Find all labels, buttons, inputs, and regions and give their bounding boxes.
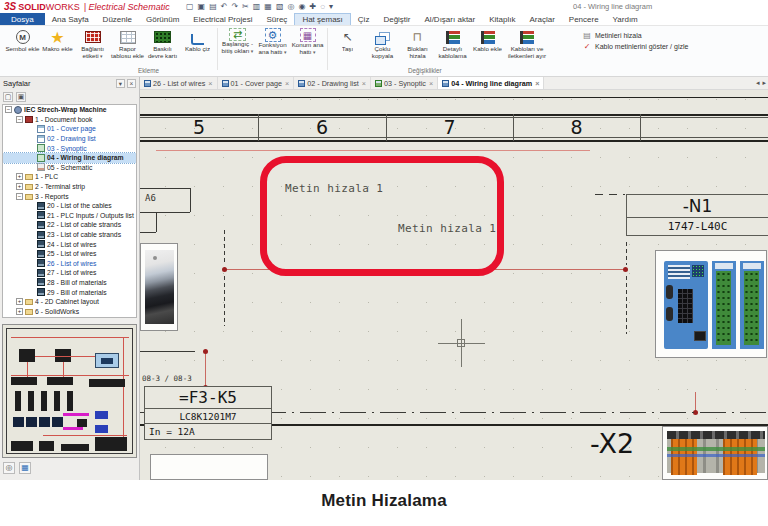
button-label: Rapor tablosu ekle [110,46,145,60]
component-block-f3-k5[interactable]: =F3-K5 LC8K1201M7 In = 12A [144,386,272,440]
multi-copy-button[interactable]: Çoklu kopyala [365,28,400,60]
red-grid-icon [85,31,101,43]
report-page-icon [37,269,45,277]
sidebar-toolbar: ▢ ▣ [3,92,26,102]
menu-tab-surec[interactable]: Süreç [259,13,294,25]
tree-item-document-book[interactable]: 1 - Document book [3,115,136,125]
doc-tab-04-wiring-line-diagram[interactable]: 04 - Wiring line diagram × [438,77,544,89]
paste-special-icon[interactable]: ▧ [276,0,284,13]
tree-item-cover-page[interactable]: 01 - Cover page [3,124,136,134]
main-area: ▢ ▣ IEC Strech-Wrap Machine 1 - Document… [0,90,768,480]
folder-icon [25,184,33,190]
tree-item-label: 22 - List of cable strands [47,221,121,228]
sidebar-title: Sayfalar [3,79,114,88]
tree-item-plc-folder[interactable]: 1 - PLC [3,172,136,182]
expander-icon[interactable] [16,193,23,200]
button-label: Makro ekle [42,46,72,60]
close-tab-icon[interactable]: × [362,79,366,88]
zoom-fit-icon[interactable]: ◉ [298,0,305,13]
table-icon [120,31,136,44]
tree-item-report-20[interactable]: 20 - List of the cables [3,201,136,211]
doc-icon [375,80,382,87]
tree-item-label: 26 - List of wires [47,260,96,267]
document-tab-row: Sayfalar ▾ × 26 - List of wires × 01 - C… [0,77,768,90]
tree-item-label: 01 - Cover page [47,125,96,132]
ribbon-side-buttons: ▤ Metinleri hizala ✓ Kablo metinlerini g… [582,30,688,52]
button-label: Konum ana hattı [290,42,325,56]
redo-icon[interactable]: ↷ [231,0,238,13]
doc-icon [144,80,151,87]
button-label: Kablo metinlerini göster / gizle [595,43,688,50]
menu-tab-yardim[interactable]: Yardım [606,13,645,25]
tree-item-wiring-line-diagram[interactable]: 04 - Wiring line diagram [3,153,136,163]
move-button[interactable]: ↖ Taşı [330,28,365,60]
button-label: Bağlantı etiketi [75,46,110,60]
close-panel-icon[interactable]: × [127,79,136,88]
button-label: Sembol ekle [5,46,39,60]
menu-tab-dosya[interactable]: Dosya [0,13,45,25]
button-label: Baskılı devre kartı ekle [145,46,180,60]
brand-bold: SOLID [18,2,46,12]
menu-tab-gorunum[interactable]: Görünüm [139,13,186,25]
tree-item-drawing-list[interactable]: 02 - Drawing list [3,134,136,144]
component-tag: -N1 [627,195,768,218]
tree-item-label: 28 - Bill of materials [47,279,107,286]
column-header-6: 6 [258,117,386,137]
menu-tab-al-disari-aktar[interactable]: Al/Dışarı aktar [418,13,483,25]
zoom-window-icon[interactable]: ◎ [287,0,294,13]
insert-report-table-button[interactable]: Rapor tablosu ekle [110,28,145,60]
cable-bars-add-icon [481,31,495,44]
tree-item-report-25[interactable]: 25 - List of wires [3,249,136,259]
move-arrow-icon: ↖ [338,28,358,46]
menu-bar: Dosya Ana Sayfa Düzenle Görünüm Electric… [0,13,768,26]
tree-item-schematic[interactable]: 05 - Schematic [3,163,136,173]
button-label: Taşı [342,46,353,60]
button-label: Kablo çiz [185,46,210,60]
tree-item-label: 27 - List of wires [47,269,96,276]
grid-view-icon[interactable]: ▦ [19,462,31,474]
tree-item-report-27[interactable]: 27 - List of wires [3,268,136,278]
align-text-icon: ▤ [582,31,592,40]
button-label: Blokları hizala [400,46,435,60]
image-caption: Metin Hizalama [0,480,768,526]
align-bracket-icon: ⊓ [408,28,428,46]
copy-icon[interactable]: ▥ [253,0,261,13]
doc-tab-26-list-of-wires[interactable]: 26 - List of wires × [140,77,218,89]
folder-icon [25,174,33,180]
doc-icon [442,80,449,87]
report-page-icon [37,288,45,296]
solidworks-logo: 3S SOLIDWORKS | Electrical Schematic [4,0,170,14]
copy-squares-icon [375,36,386,45]
clipboard-icon[interactable]: ▣ [16,92,26,102]
pan-icon[interactable]: ✚ [309,0,316,13]
wire [205,351,206,388]
button-label: Kablo ekle [473,46,502,60]
page-icon [37,125,45,133]
solidworks-logo-mark: 3S [4,0,16,13]
book-icon [25,116,33,123]
menu-tab-electrical-projesi[interactable]: Electrical Projesi [186,13,259,25]
tree-item-label: 3 - Reports [35,193,69,200]
document-tabs: 26 - List of wires × 01 - Cover page × 0… [140,77,768,90]
contactor-photo [150,454,268,480]
ribbon: M Sembol ekle ★ Makro ekle Bağlantı etik… [0,26,768,77]
button-label: Başlangıç - bitiş okları [220,41,255,55]
wire-junction [222,267,227,272]
expander-icon[interactable] [16,116,23,123]
origin-destination-arrows-button[interactable]: ⇄ Başlangıç - bitiş okları [220,28,255,55]
brand-light: WORKS [46,2,80,12]
group-label-degisiklikler: Değişiklikler [408,67,442,74]
tab-scroll-right-icon[interactable]: ▸ [762,79,766,87]
close-tab-icon[interactable]: × [535,79,539,88]
button-label: Fonksiyon ana hattı [255,42,290,56]
add-cable-button[interactable]: Kablo ekle [470,28,505,60]
tab-scroll-left-icon[interactable]: ◂ [756,79,760,87]
column-header-8: 8 [513,117,640,137]
separate-cables-button[interactable]: Kabloları ve iletkenleri ayır [505,28,549,60]
doc-tab-label: 04 - Wiring line diagram [451,79,532,88]
cable-bars-icon [446,31,460,44]
location-outline-button[interactable]: ▦ Konum ana hattı [290,28,325,56]
tree-item-report-23[interactable]: 23 - List of cable strands [3,230,136,240]
zoom-preview-icon[interactable]: ◎ [3,462,15,474]
drawing-canvas[interactable]: 5 6 7 8 A6 Metin hizala 1 Metin hizala 1… [140,90,768,480]
tab-scroll-nav: ◂ ▸ [756,79,766,87]
pin-icon[interactable]: ▾ [116,79,125,88]
ribbon-separator [217,28,218,70]
ribbon-separator [327,28,328,70]
product-name: | Electrical Schematic [84,1,170,14]
doc-tab-label: 01 - Cover page [231,79,283,88]
synoptic-page-icon [37,144,45,152]
wire-icon [191,34,204,45]
new-icon[interactable]: ▢ [186,0,194,13]
title-bar: 3S SOLIDWORKS | Electrical Schematic ▢ ▣… [0,0,768,13]
circuit-breaker-photo [140,243,178,331]
doc-tab-label: 03 - Synoptic [384,79,426,88]
folder-icon [25,299,33,305]
report-page-icon [37,211,45,219]
tree-item-solidworks-folder[interactable]: 6 - SolidWorks [3,306,136,316]
doc-tab-label: 02 - Drawing list [307,79,359,88]
report-page-icon [37,259,45,267]
align-texts-button[interactable]: ▤ Metinleri hizala [582,30,688,41]
menu-tab-ciz[interactable]: Çiz [351,13,377,25]
tree-item-synoptic[interactable]: 03 - Synoptic [3,143,136,153]
report-page-icon [37,240,45,248]
tree-item-label: 2 - Terminal strip [35,183,85,190]
search-icon[interactable]: ◌ [320,0,325,13]
doc-tab-01-cover-page[interactable]: 01 - Cover page × [218,77,295,89]
button-label: Detaylı kablolama [435,46,470,60]
sidebar-bottom-toolbar: ◎ ▦ [3,462,31,474]
cable-bars-split-icon [520,31,534,44]
insert-symbol-button[interactable]: M Sembol ekle [5,28,40,60]
component-rating: In = 12A [145,424,271,439]
show-hide-cable-texts-button[interactable]: ✓ Kablo metinlerini göster / gizle [582,41,688,52]
tree-item-report-21[interactable]: 21 - PLC Inputs / Outputs list [3,211,136,221]
tree-item-report-28[interactable]: 28 - Bill of materials [3,278,136,288]
tree-item-label: 6 - SolidWorks [35,308,79,315]
diagram-page-icon [37,154,45,162]
doc-tab-03-synoptic[interactable]: 03 - Synoptic × [371,77,438,89]
page-preview-thumbnail[interactable] [2,324,137,458]
column-header-7: 7 [386,117,513,137]
window-title: 04 - Wiring line diagram [573,0,652,13]
doc-icon [222,80,229,87]
tree-item-label: 1 - Document book [35,116,92,123]
cut-icon[interactable]: ✂ [242,0,249,13]
close-tab-icon[interactable]: × [285,79,289,88]
group-label-ekleme: Ekleme [138,67,159,74]
report-page-icon [37,202,45,210]
tree-item-terminal-strip-folder[interactable]: 2 - Terminal strip [3,182,136,192]
function-outline-button[interactable]: ⚙ Fonksiyon ana hattı [255,28,290,56]
cross-reference: 08-3 / 08-3 [142,374,192,383]
wire-junction [623,267,628,272]
wire-junction [203,349,208,354]
report-page-icon [37,221,45,229]
draw-cable-button[interactable]: Kablo çiz [180,28,215,60]
cable-text-toggle-icon: ✓ [582,42,592,51]
wire [156,150,590,151]
expander-icon[interactable] [16,183,23,190]
paste-icon[interactable]: ▦ [264,0,272,13]
expander-icon[interactable] [16,173,23,180]
close-tab-icon[interactable]: × [208,79,212,88]
pages-sidebar: ▢ ▣ IEC Strech-Wrap Machine 1 - Document… [0,90,140,480]
menu-tab-duzenle[interactable]: Düzenle [96,13,139,25]
menu-tab-hat-semasi[interactable]: Hat şeması [294,13,350,25]
project-icon [14,106,22,114]
component-tag: =F3-K5 [145,387,271,409]
expander-icon[interactable] [16,308,23,315]
component-reference: 1747-L40C [627,218,768,235]
star-icon: ★ [48,28,68,46]
terminal-blocks-photo [662,426,768,480]
quick-access-toolbar: ▢ ▣ ▤ ↶ ↷ ✂ ▥ ▦ ▧ ◎ ◉ ✚ ◌ ▾ [186,0,333,13]
tree-item-label: 03 - Synoptic [47,145,87,152]
tree-item-label: 05 - Schematic [47,164,92,171]
doc-icon [298,80,305,87]
insert-pcb-button[interactable]: Baskılı devre kartı ekle [145,28,180,60]
component-block-n1[interactable]: -N1 1747-L40C [626,194,768,236]
menu-tab-kitaplik[interactable]: Kitaplık [482,13,522,25]
button-label: Çoklu kopyala [365,46,400,60]
expander-icon[interactable] [5,106,12,113]
align-blocks-button[interactable]: ⊓ Blokları hizala [400,28,435,60]
menu-tab-ana-sayfa[interactable]: Ana Sayfa [45,13,96,25]
sidebar-header: Sayfalar ▾ × [0,77,140,90]
pages-tree: IEC Strech-Wrap Machine 1 - Document boo… [2,104,137,318]
detailed-cabling-button[interactable]: Detaylı kablolama [435,28,470,60]
folder-icon [25,194,33,200]
folder-icon [25,309,33,315]
tree-item-label: 24 - List of wires [47,241,96,248]
undo-icon[interactable]: ↶ [221,0,228,13]
close-tab-icon[interactable]: × [429,79,433,88]
insert-macro-button[interactable]: ★ Makro ekle [40,28,75,60]
qat-options-icon[interactable]: ▾ [329,0,333,13]
tree-item-report-26[interactable]: 26 - List of wires [3,259,136,269]
tree-item-report-29[interactable]: 29 - Bill of materials [3,287,136,297]
tree-item-label: 21 - PLC Inputs / Outputs list [47,212,134,219]
symbol-icon: M [16,30,30,44]
tree-item-project[interactable]: IEC Strech-Wrap Machine [3,105,136,115]
pcb-icon [154,31,171,43]
crosshair-pickbox [457,339,465,347]
terminal-strip-tag-x2[interactable]: -X2 [590,428,634,459]
menu-tab-araclar[interactable]: Araçlar [522,13,561,25]
column-header-5: 5 [140,117,258,137]
new-page-icon[interactable]: ▢ [3,92,13,102]
red-highlight-annotation [260,156,504,276]
save-icon[interactable]: ▣ [198,0,206,13]
tree-item-label: 4 - 2D Cabinet layout [35,298,99,305]
component-tag-a6: A6 [145,193,156,203]
tree-item-report-24[interactable]: 24 - List of wires [3,239,136,249]
component-reference: LC8K1201M7 [145,409,271,424]
tree-item-label: IEC Strech-Wrap Machine [24,106,107,113]
doc-tab-02-drawing-list[interactable]: 02 - Drawing list × [294,77,371,89]
schematic-page-icon [37,163,45,171]
tree-item-label: 23 - List of cable strands [47,231,121,238]
location-box-icon: ▦ [300,28,316,42]
tree-item-label: 29 - Bill of materials [47,289,107,296]
gear-icon: ⚙ [265,28,281,42]
tree-item-reports-folder[interactable]: 3 - Reports [3,191,136,201]
tree-item-label: 1 - PLC [35,173,58,180]
page-icon [37,135,45,143]
report-page-icon [37,250,45,258]
tree-item-label: 04 - Wiring line diagram [47,154,124,161]
button-label: Kabloları ve iletkenleri ayır [505,46,549,60]
tree-item-label: 02 - Drawing list [47,135,96,142]
tree-item-label: 20 - List of the cables [47,202,112,209]
tree-item-label: 25 - List of wires [47,250,96,257]
plc-photo [655,250,767,358]
report-page-icon [37,278,45,286]
tree-item-2d-cabinet-layout[interactable]: 4 - 2D Cabinet layout [3,297,136,307]
connection-label-button[interactable]: Bağlantı etiketi [75,28,110,60]
print-icon[interactable]: ▤ [209,0,217,13]
report-page-icon [37,231,45,239]
button-label: Metinleri hizala [595,32,642,39]
tree-item-report-22[interactable]: 22 - List of cable strands [3,220,136,230]
menu-tab-degistir[interactable]: Değiştir [376,13,417,25]
menu-tab-pencere[interactable]: Pencere [562,13,606,25]
expander-icon[interactable] [16,298,23,305]
arrows-icon: ⇄ [229,28,246,41]
wire [695,392,696,412]
doc-tab-label: 26 - List of wires [153,79,205,88]
